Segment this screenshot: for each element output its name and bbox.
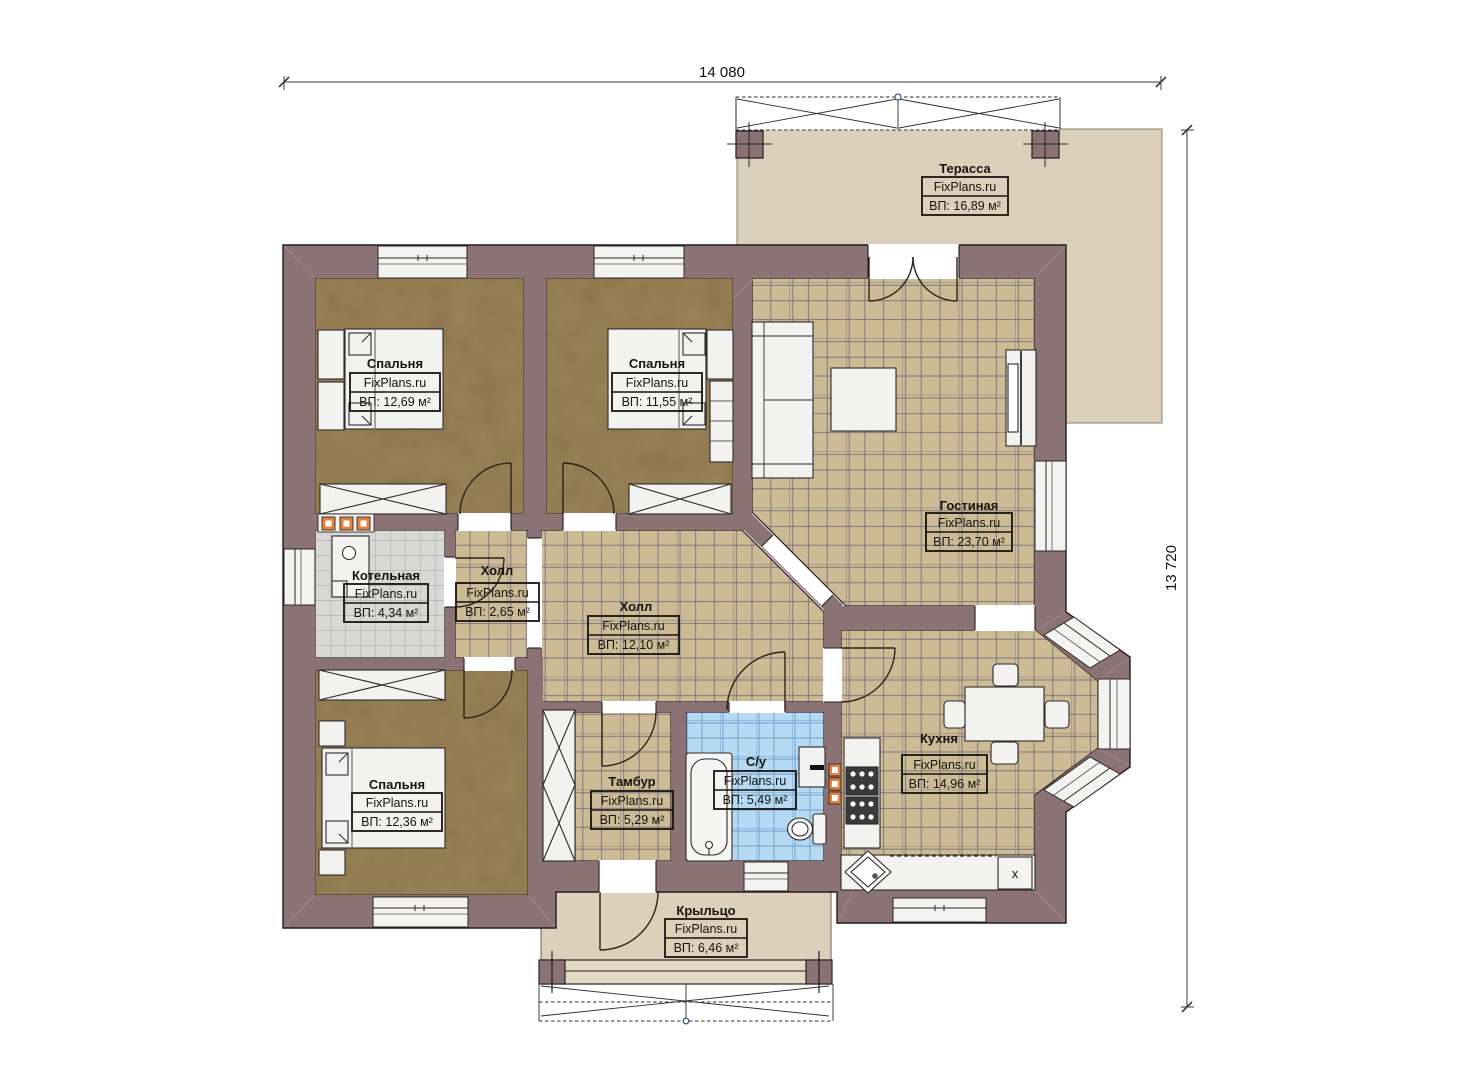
svg-text:Котельная: Котельная [352,568,420,583]
svg-text:ВП: 4,34 м²: ВП: 4,34 м² [354,606,419,620]
svg-text:Крыльцо: Крыльцо [676,903,735,918]
svg-text:13 720: 13 720 [1163,545,1180,591]
svg-text:Кухня: Кухня [920,731,958,746]
svg-text:ВП: 14,96 м²: ВП: 14,96 м² [909,777,981,791]
svg-text:ВП: 16,89 м²: ВП: 16,89 м² [929,199,1001,213]
svg-text:С/у: С/у [746,754,767,769]
svg-text:Холл: Холл [481,563,514,578]
svg-text:ВП: 6,46 м²: ВП: 6,46 м² [674,941,739,955]
svg-text:x: x [1012,866,1019,881]
svg-text:Спальня: Спальня [367,356,423,371]
svg-text:FixPlans.ru: FixPlans.ru [934,180,997,194]
svg-text:Тамбур: Тамбур [608,774,655,789]
svg-text:14 080: 14 080 [699,64,745,81]
svg-text:ВП: 12,69 м²: ВП: 12,69 м² [359,395,431,409]
svg-text:ВП: 11,55 м²: ВП: 11,55 м² [622,395,693,409]
svg-text:FixPlans.ru: FixPlans.ru [366,796,429,810]
svg-text:FixPlans.ru: FixPlans.ru [626,376,689,390]
svg-text:ВП: 12,10 м²: ВП: 12,10 м² [598,638,670,652]
svg-text:FixPlans.ru: FixPlans.ru [675,922,738,936]
svg-text:FixPlans.ru: FixPlans.ru [938,516,1001,530]
svg-text:Спальня: Спальня [369,777,425,792]
svg-text:Гостиная: Гостиная [940,498,999,513]
svg-text:FixPlans.ru: FixPlans.ru [913,758,976,772]
svg-text:ВП: 23,70 м²: ВП: 23,70 м² [933,535,1005,549]
svg-text:FixPlans.ru: FixPlans.ru [602,619,665,633]
svg-text:ВП: 2,65 м²: ВП: 2,65 м² [465,605,530,619]
svg-text:FixPlans.ru: FixPlans.ru [466,586,529,600]
svg-text:Терасса: Терасса [939,161,991,176]
svg-text:FixPlans.ru: FixPlans.ru [364,376,427,390]
svg-text:FixPlans.ru: FixPlans.ru [355,587,418,601]
svg-text:Холл: Холл [620,599,653,614]
svg-text:Спальня: Спальня [629,356,685,371]
svg-text:FixPlans.ru: FixPlans.ru [601,794,664,808]
svg-text:ВП: 5,49 м²: ВП: 5,49 м² [723,793,788,807]
svg-text:ВП: 5,29 м²: ВП: 5,29 м² [600,813,665,827]
svg-text:FixPlans.ru: FixPlans.ru [724,774,787,788]
svg-text:ВП: 12,36 м²: ВП: 12,36 м² [361,815,433,829]
